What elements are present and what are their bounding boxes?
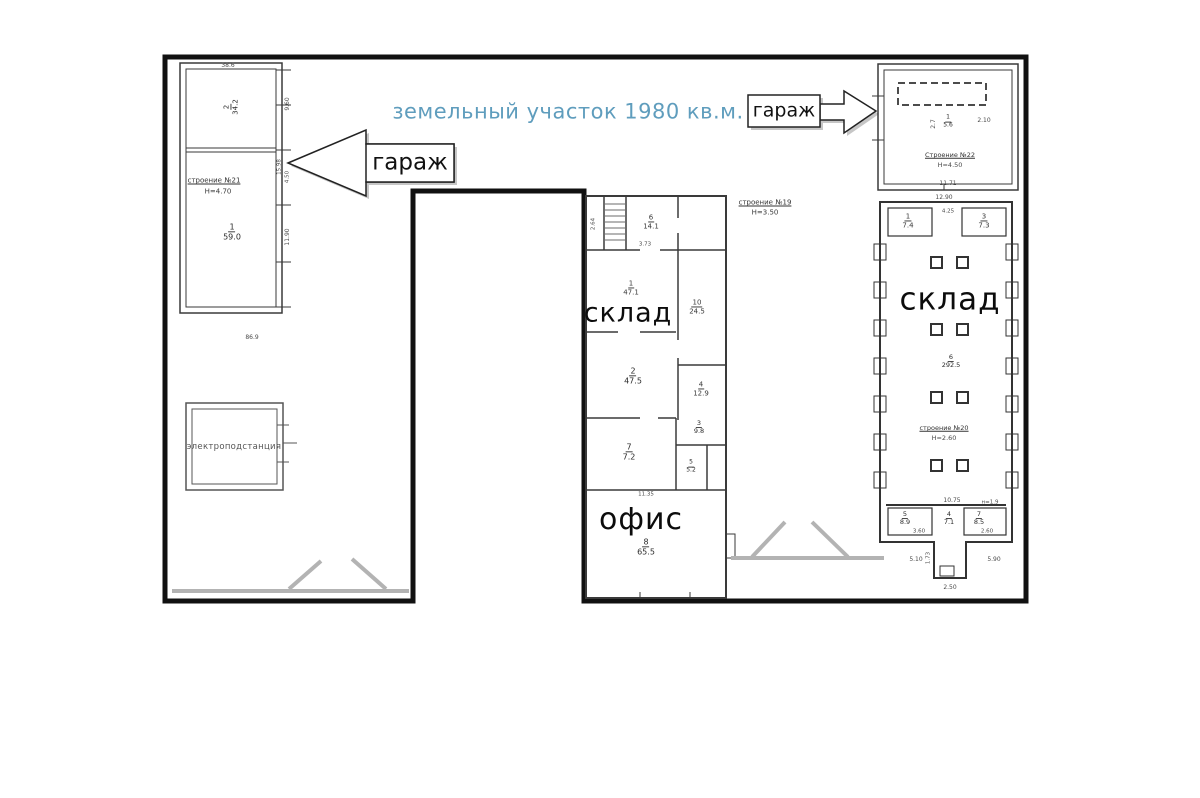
cb-room-10: 1024.5 <box>689 298 705 315</box>
rw-dim-left-room: 3.60 <box>913 529 925 535</box>
garage-label-right: гараж <box>753 102 815 121</box>
rg-dim-right: 2.10 <box>977 118 990 124</box>
lg-dim-right-upper: 9.60 <box>285 97 291 110</box>
lg-room-upper: 234.2 <box>222 99 239 115</box>
cb-room-1: 147.1 <box>623 279 639 296</box>
rg-height: Н=4.50 <box>938 162 963 169</box>
rg-name: Строение №22 <box>925 152 975 159</box>
warehouse-center-label: склад <box>584 300 673 327</box>
rw-room-6: 6292.5 <box>942 354 961 370</box>
cb-dim-373: 3.73 <box>639 242 651 248</box>
lg-height: Н=4.70 <box>205 189 232 196</box>
cb-room-2: 247.5 <box>624 366 642 385</box>
rw-room-3: 37.3 <box>978 212 989 229</box>
rw-room-7: 78.5 <box>974 511 984 527</box>
rg-room: 15.6 <box>943 115 953 130</box>
rw-dim-right-room: 2.60 <box>981 529 993 535</box>
rw-dim-corridor: 4.25 <box>942 209 954 215</box>
substation-label: электроподстанция <box>187 443 282 452</box>
garage-arrow-right <box>820 91 876 133</box>
lg-dim-bottom: 86.9 <box>245 335 258 341</box>
rw-dim-bottom-left: 5.10 <box>909 557 922 563</box>
cb-room-3: 39.8 <box>694 420 704 436</box>
rw-room-1: 17.4 <box>902 212 913 229</box>
cb-room-5: 55.2 <box>686 460 696 475</box>
rw-dim-passage-v: 1.73 <box>926 552 932 564</box>
rw-dim-note: н=1.9 <box>982 500 999 506</box>
rw-dim-passage-b: 2.50 <box>943 585 956 591</box>
lg-dim-right-lower: 11.90 <box>285 228 291 245</box>
site-plan: земельный участок 1980 кв.м. гараж гараж… <box>0 0 1200 798</box>
rw-room-5: 58.9 <box>900 511 910 527</box>
cb-dim-264: 2.64 <box>591 218 597 230</box>
gate-marks <box>172 522 884 591</box>
rw-dim-mid: 10.75 <box>943 498 960 504</box>
rw-room-4: 47.1 <box>944 511 954 527</box>
dashed-area <box>898 83 986 105</box>
garage-arrow-left-label: гараж <box>372 152 448 175</box>
cb-name: строение №19 <box>739 200 792 207</box>
page-title: земельный участок 1980 кв.м. <box>392 102 743 123</box>
lg-dim-top: 38.6 <box>221 63 234 69</box>
cb-room-4: 412.9 <box>693 380 709 397</box>
cb-room-8: 865.5 <box>637 537 655 556</box>
cb-room-7: 77.2 <box>623 442 636 461</box>
rg-dim-left: 2.7 <box>931 119 937 129</box>
lg-room-lower: 159.0 <box>223 222 241 241</box>
rw-dim-bottom-right: 5.90 <box>987 557 1000 563</box>
center-building <box>586 196 735 598</box>
cb-dim-1135: 11.35 <box>638 492 654 498</box>
rw-name: строение №20 <box>919 425 968 432</box>
cb-room-6: 614.1 <box>643 213 659 230</box>
lg-dim-right-mid: 4.50 <box>285 171 291 183</box>
lg-dim-side: 15.98 <box>277 159 283 175</box>
cb-height: Н=3.50 <box>752 210 779 217</box>
warehouse-right-label: склад <box>899 285 1000 316</box>
rg-dim-bottom: 11.71 <box>939 181 956 187</box>
plot-boundary <box>165 57 1026 601</box>
lg-name: строение №21 <box>188 178 241 185</box>
office-label: офис <box>599 505 683 535</box>
rw-dim-top: 12.90 <box>935 195 952 201</box>
rw-height: Н=2.60 <box>932 435 957 442</box>
